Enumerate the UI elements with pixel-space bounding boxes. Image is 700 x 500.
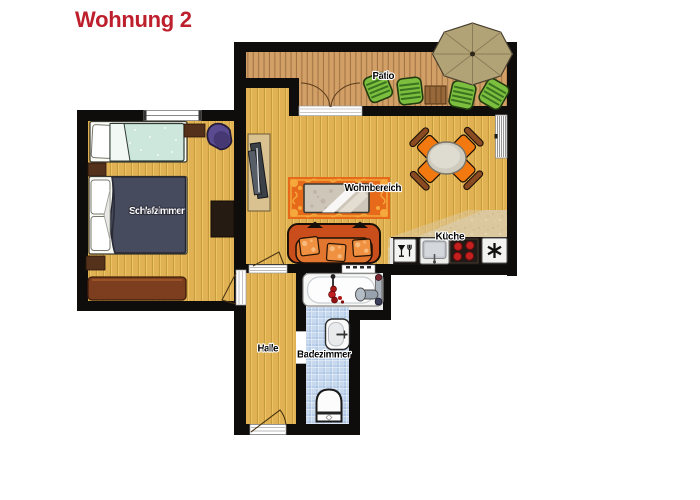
svg-text:Badezimmer: Badezimmer bbox=[297, 350, 351, 361]
svg-text:Wohnung 2: Wohnung 2 bbox=[75, 7, 192, 32]
svg-text:Schlafzimmer: Schlafzimmer bbox=[129, 205, 185, 217]
svg-text:Halle: Halle bbox=[258, 344, 279, 355]
svg-text:Wohnbereich: Wohnbereich bbox=[345, 183, 402, 194]
svg-text:Patio: Patio bbox=[373, 71, 395, 82]
svg-text:Küche: Küche bbox=[436, 232, 465, 243]
